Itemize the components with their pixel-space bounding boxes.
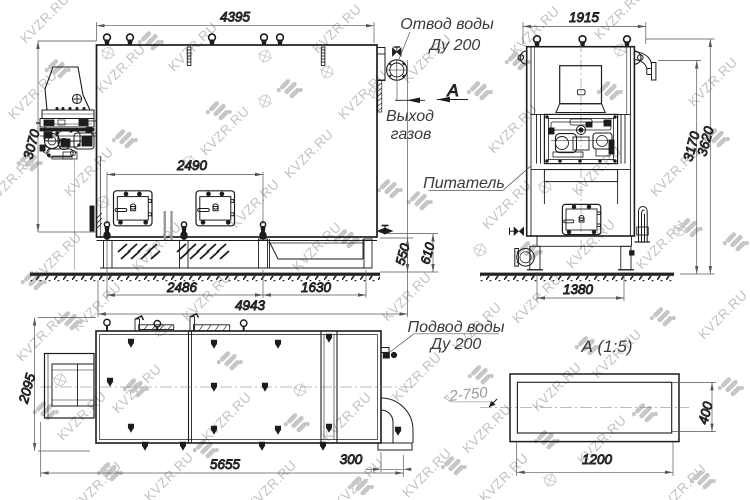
svg-text:Ду 200: Ду 200 [428, 37, 481, 54]
svg-text:Ду 200: Ду 200 [429, 336, 482, 353]
svg-text:Питатель: Питатель [423, 175, 505, 192]
svg-text:1915: 1915 [569, 10, 600, 25]
svg-text:А: А [446, 81, 458, 100]
svg-text:4943: 4943 [235, 298, 266, 313]
svg-text:Выход: Выход [386, 108, 434, 125]
svg-text:газов: газов [391, 126, 432, 143]
svg-text:2490: 2490 [176, 158, 208, 173]
svg-text:4395: 4395 [220, 10, 251, 25]
svg-text:5655: 5655 [210, 457, 241, 472]
svg-text:300: 300 [340, 452, 363, 467]
svg-text:1200: 1200 [582, 452, 613, 467]
svg-text:2486: 2486 [166, 280, 198, 295]
svg-text:Отвод воды: Отвод воды [400, 16, 494, 33]
svg-text:1630: 1630 [301, 280, 332, 295]
svg-text:А (1:5): А (1:5) [580, 337, 632, 356]
svg-text:1380: 1380 [563, 282, 594, 297]
